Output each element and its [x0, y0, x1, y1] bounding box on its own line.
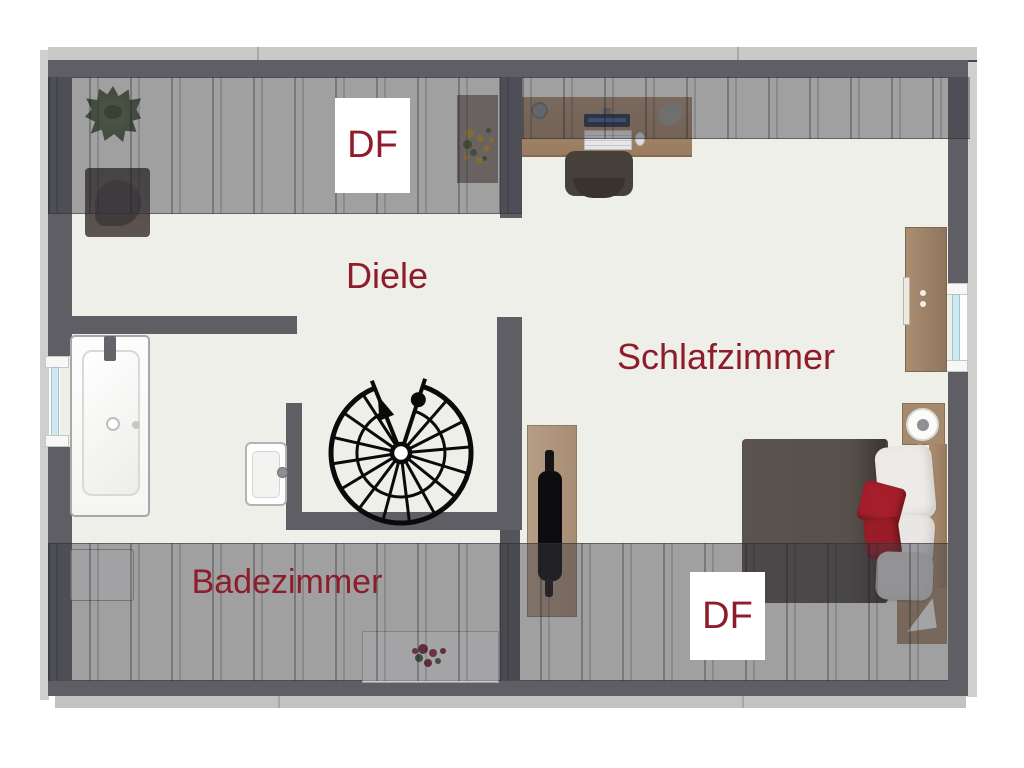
spiral-staircase-icon [321, 373, 481, 533]
roof-window-label-bottom: DF [690, 572, 765, 660]
wall-stair-left [286, 403, 302, 523]
roof-slope-overlay-top-right [522, 77, 970, 139]
roof-eave-bottom [55, 696, 966, 708]
roof-window-label-top: DF [335, 98, 410, 193]
room-label-diele: Diele [312, 255, 462, 297]
roof-window-label-text: DF [702, 595, 753, 638]
room-label-badezimmer: Badezimmer [162, 563, 412, 602]
washbasin-bowl [252, 451, 280, 498]
washbasin [245, 442, 287, 506]
room-label-schlafzimmer: Schlafzimmer [576, 336, 876, 378]
wardrobe-knob [920, 290, 926, 296]
roof-panel-joint [278, 696, 280, 708]
roof-panel-joint [742, 696, 744, 708]
wardrobe-knob [920, 301, 926, 307]
office-chair [565, 151, 633, 196]
table-lamp-center [917, 419, 929, 431]
wall-stair-right [497, 317, 522, 530]
wall-bottom [48, 680, 965, 696]
wall-badezimmer-top [48, 316, 297, 334]
wall-right-lower [948, 372, 968, 696]
nightstand [902, 403, 945, 445]
roof-panel-joint [257, 47, 259, 60]
wardrobe [905, 227, 947, 372]
table-lamp [906, 408, 939, 441]
bathtub-handle [132, 421, 140, 429]
roof-slope-overlay-top-left [48, 77, 522, 214]
window-frame-cap [45, 435, 69, 447]
window-glass [952, 294, 960, 361]
roof-eave-right [967, 50, 977, 697]
bathtub-drain [106, 417, 120, 431]
bathtub [70, 335, 150, 517]
window-frame-cap [946, 360, 968, 372]
washbasin-faucet [277, 467, 288, 478]
floorplan-canvas: DF DF Diele Schlafzimmer Badezimmer [0, 0, 1024, 768]
wardrobe-handle [903, 277, 910, 325]
office-chair-seat [573, 178, 625, 198]
bathtub-faucet [104, 336, 116, 361]
window-glass [51, 367, 59, 436]
roof-window-label-text: DF [347, 124, 398, 167]
roof-panel-joint [737, 47, 739, 60]
